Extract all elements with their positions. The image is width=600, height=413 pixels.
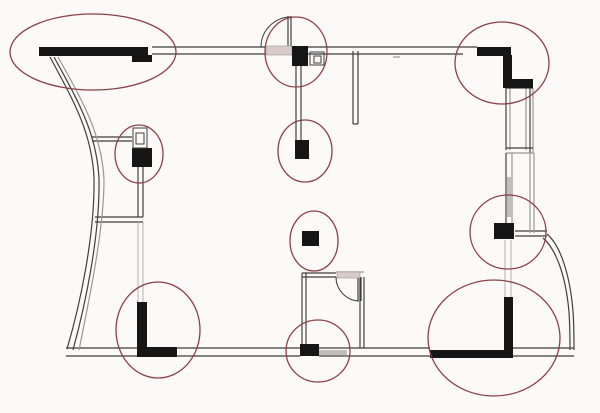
right-curved-wall-inner: [543, 238, 570, 350]
outlet-top-middle-inner: [314, 56, 321, 63]
column-mid-right: [494, 223, 514, 239]
outlet-mid-left-outer: [133, 128, 147, 148]
floor-plan-canvas: [0, 0, 600, 413]
top-right-wall-step: [503, 79, 533, 88]
door-swing-room: [336, 277, 359, 301]
top-right-wall-vertical: [503, 55, 512, 82]
column-center: [302, 231, 319, 246]
left-curved-wall-inner: [58, 57, 104, 350]
left-curved-wall-mid: [54, 57, 99, 350]
top-left-wall-step: [132, 55, 152, 62]
curved-walls-group: [50, 57, 574, 350]
marker-bottom-left-corner: [116, 282, 200, 378]
top-right-wall-bar: [477, 47, 511, 56]
column-bottom-middle: [300, 344, 319, 356]
column-mid-top: [295, 140, 309, 159]
column-top-middle: [292, 46, 308, 66]
window-shade-right-bay: [507, 177, 512, 217]
outlet-mid-left-inner: [136, 133, 144, 144]
column-mid-left: [132, 148, 152, 167]
outlet-symbols-group: [133, 52, 324, 148]
door-opening-top: [266, 46, 292, 55]
top-left-wall-bar: [39, 47, 148, 56]
wall-shade-bottom-middle: [319, 350, 347, 355]
marker-top-right-corner: [455, 22, 549, 104]
door-opening-room: [337, 272, 360, 278]
thick-walls-columns-group: [39, 46, 533, 358]
red-markers-group: [10, 14, 560, 396]
column-bottom-left-horiz: [137, 347, 177, 357]
column-bottom-right-vert: [504, 297, 513, 358]
column-bottom-right-horiz: [430, 350, 513, 358]
marker-bottom-right-corner: [428, 280, 560, 396]
shading-group: [266, 46, 512, 355]
floor-plan-screenshot: [0, 0, 600, 413]
